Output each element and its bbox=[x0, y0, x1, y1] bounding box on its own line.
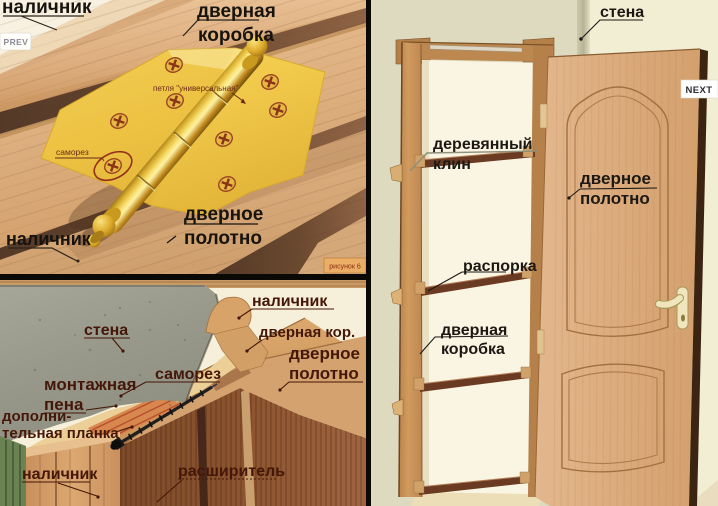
svg-text:дверная кор.: дверная кор. bbox=[259, 324, 355, 341]
svg-text:полотно: полотно bbox=[184, 228, 262, 249]
svg-text:дверное: дверное bbox=[184, 204, 263, 225]
svg-text:рисунок 6: рисунок 6 bbox=[329, 264, 361, 271]
svg-text:PREV: PREV bbox=[4, 37, 29, 47]
svg-text:монтажная: монтажная bbox=[44, 375, 136, 394]
svg-text:расширитель: расширитель bbox=[178, 463, 285, 480]
svg-text:дверное: дверное bbox=[580, 169, 651, 188]
svg-text:наличник: наличник bbox=[2, 0, 92, 18]
svg-text:саморез: саморез bbox=[56, 147, 89, 157]
svg-text:NEXT: NEXT bbox=[686, 85, 713, 96]
svg-text:стена: стена bbox=[84, 322, 128, 339]
svg-text:полотно: полотно bbox=[580, 189, 650, 208]
svg-text:тельная планка: тельная планка bbox=[2, 425, 119, 442]
svg-text:коробка: коробка bbox=[198, 25, 274, 46]
svg-text:петля "универсальная": петля "универсальная" bbox=[153, 84, 238, 93]
svg-text:наличник: наличник bbox=[252, 293, 328, 310]
svg-text:стена: стена bbox=[600, 4, 644, 21]
svg-text:дверное: дверное bbox=[289, 344, 360, 363]
svg-text:саморез: саморез bbox=[155, 366, 221, 383]
svg-text:дверная: дверная bbox=[197, 1, 276, 22]
svg-text:наличник: наличник bbox=[22, 466, 98, 483]
svg-text:полотно: полотно bbox=[289, 364, 359, 383]
svg-text:клин: клин bbox=[433, 156, 471, 173]
svg-text:деревянный: деревянный bbox=[433, 136, 533, 153]
svg-text:дополни-: дополни- bbox=[2, 408, 71, 425]
svg-text:коробка: коробка bbox=[441, 341, 505, 358]
svg-text:наличник: наличник bbox=[6, 229, 92, 249]
